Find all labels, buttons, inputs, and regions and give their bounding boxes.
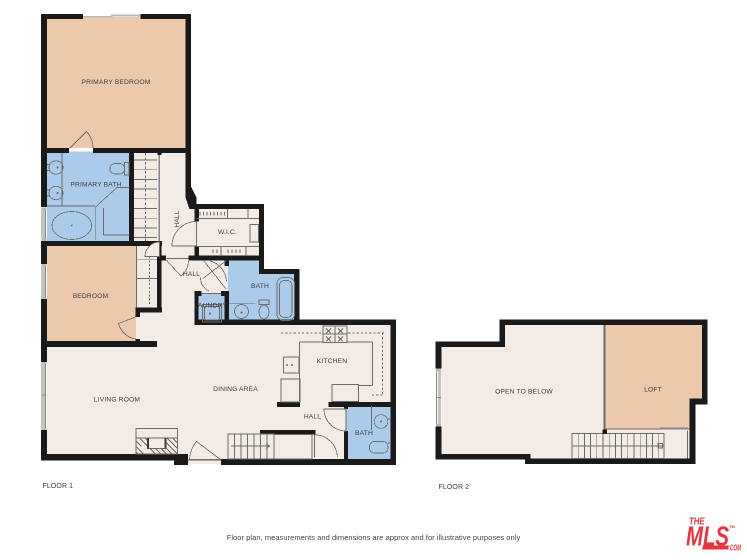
svg-text:LIVING ROOM: LIVING ROOM <box>94 397 141 404</box>
svg-text:HALL: HALL <box>304 414 321 421</box>
svg-text:FLOOR 1: FLOOR 1 <box>43 483 74 490</box>
svg-text:Floor plan, measurements and d: Floor plan, measurements and dimensions … <box>227 533 521 542</box>
svg-text:LAUNDRY: LAUNDRY <box>194 303 227 310</box>
svg-text:DINING AREA: DINING AREA <box>213 386 258 393</box>
svg-text:OPEN TO BELOW: OPEN TO BELOW <box>495 389 553 396</box>
svg-text:BEDROOM: BEDROOM <box>73 293 109 300</box>
svg-text:.COM: .COM <box>729 544 742 553</box>
svg-text:TM: TM <box>729 524 735 529</box>
svg-text:KITCHEN: KITCHEN <box>317 358 347 365</box>
svg-text:BATH: BATH <box>355 430 373 437</box>
svg-text:FLOOR 2: FLOOR 2 <box>439 484 470 491</box>
svg-text:LOFT: LOFT <box>644 387 662 394</box>
svg-text:PRIMARY BEDROOM: PRIMARY BEDROOM <box>82 79 151 86</box>
svg-text:HALL: HALL <box>183 271 200 278</box>
svg-text:HALL: HALL <box>174 210 181 227</box>
svg-text:BATH: BATH <box>251 283 269 290</box>
svg-text:W.I.C.: W.I.C. <box>218 229 237 236</box>
svg-text:PRIMARY BATH: PRIMARY BATH <box>70 182 121 189</box>
